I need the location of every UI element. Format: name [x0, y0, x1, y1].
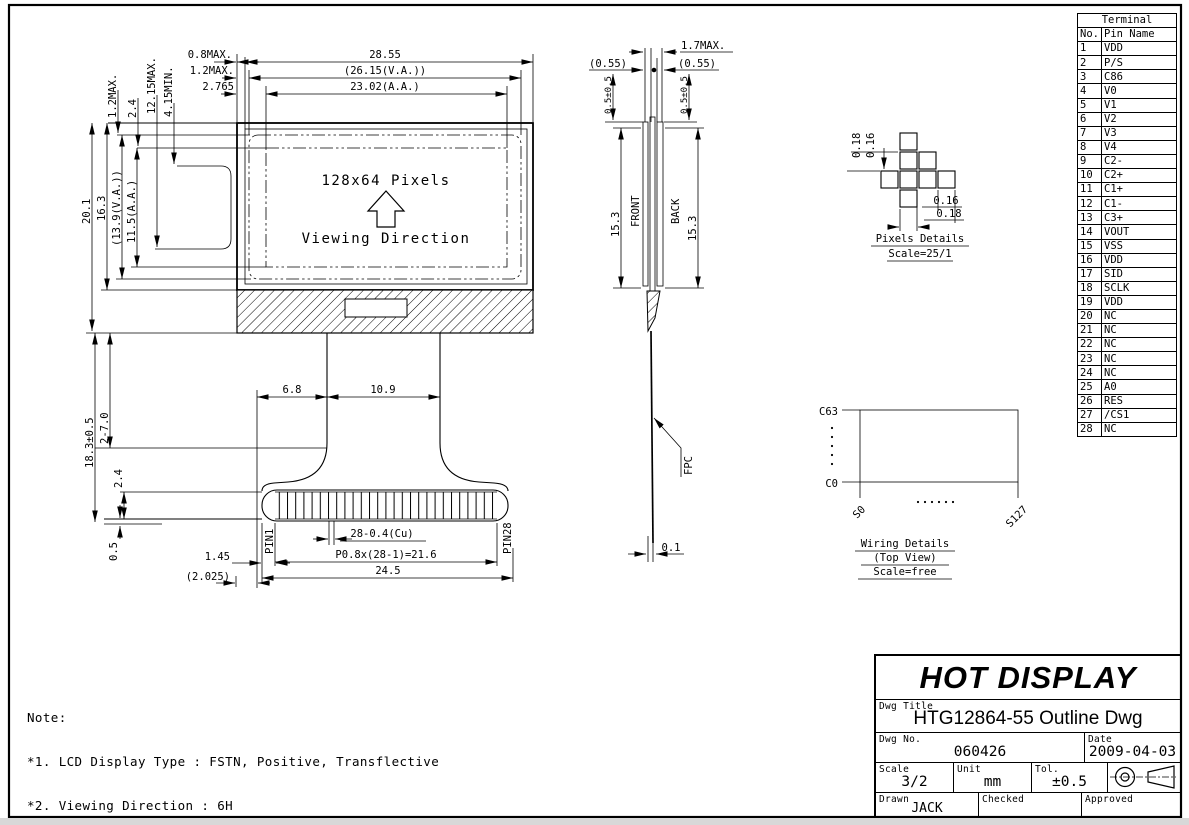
dim-153-left: 15.3 — [610, 212, 622, 237]
pixel-count-label: 128x64 Pixels — [321, 173, 450, 189]
table-row: 27/CS1 — [1078, 408, 1177, 422]
dim-top-24: 2.4 — [127, 99, 139, 118]
dim-offset-08: 0.8MAX. — [188, 49, 232, 61]
table-row: 4V0 — [1078, 84, 1177, 98]
dim-cu-height: 2.4 — [113, 469, 125, 488]
wiring-c0-label: C0 — [825, 478, 838, 490]
table-row: 23NC — [1078, 352, 1177, 366]
pixel-dim-018-h: 0.18 — [936, 208, 961, 220]
wiring-c63-label: C63 — [819, 406, 838, 418]
dim-width-va: (26.15(V.A.)) — [344, 65, 426, 77]
company-name: HOT DISPLAY — [876, 656, 1180, 699]
table-row: 13C3+ — [1078, 211, 1177, 225]
scale-value: 3/2 — [876, 774, 953, 790]
dim-145: 1.45 — [205, 551, 230, 563]
dim-offset-12: 1.2MAX. — [190, 65, 234, 77]
pixels-details-title: Pixels Details — [876, 233, 965, 245]
table-row: 17SID — [1078, 267, 1177, 281]
wiring-details-scale: Scale=free — [873, 566, 936, 578]
dim-width-total: 28.55 — [369, 49, 401, 61]
table-row: 24NC — [1078, 366, 1177, 380]
drawing-sheet: 128x64 Pixels Viewing Direction 1.2MAX. … — [0, 0, 1189, 825]
side-view: 1.7MAX. (0.55) (0.55) 0.5±0.5 0.5±0.5 15… — [589, 40, 733, 562]
viewing-direction-label: Viewing Direction — [302, 231, 471, 247]
table-row: 5V1 — [1078, 98, 1177, 112]
dim-height-total: 20.1 — [81, 199, 93, 224]
dim-neck-68: 6.8 — [283, 384, 302, 396]
pixel-dim-016-v: 0.16 — [865, 133, 877, 158]
table-row: 26RES — [1078, 394, 1177, 408]
dim-05-left: 0.5±0.5 — [604, 76, 614, 114]
dwg-title-value: HTG12864-55 Outline Dwg — [876, 708, 1180, 730]
dim-width-aa: 23.02(A.A.) — [350, 81, 420, 93]
table-row: 6V2 — [1078, 112, 1177, 126]
front-label: FRONT — [630, 195, 642, 227]
wiring-s0-label: S0 — [851, 504, 868, 521]
back-label: BACK — [670, 198, 682, 224]
drawn-value: JACK — [876, 801, 978, 816]
table-row: 9C2- — [1078, 154, 1177, 168]
dim-neck-109: 10.9 — [370, 384, 395, 396]
dim-offset-2765: 2.765 — [202, 81, 234, 93]
terminal-header-no: No. — [1078, 28, 1102, 42]
table-row: 12C1- — [1078, 197, 1177, 211]
pixels-details-scale: Scale=25/1 — [888, 248, 951, 260]
dim-153-right: 15.3 — [687, 216, 699, 241]
terminal-header-pin: Pin Name — [1102, 28, 1177, 42]
table-row: 25A0 — [1078, 380, 1177, 394]
checked-label: Checked — [982, 794, 1024, 805]
dim-height-va: (13.9(V.A.)) — [111, 170, 123, 246]
pixels-details: 0.18 0.16 0.16 0.18 Pixels Details Scale… — [847, 133, 969, 261]
table-row: 20NC — [1078, 309, 1177, 323]
pin28-label: PIN28 — [502, 522, 514, 554]
table-row: 7V3 — [1078, 126, 1177, 140]
dim-055-left: (0.55) — [589, 58, 627, 70]
table-row: 28NC — [1078, 422, 1177, 436]
dim-cu-count: 28-0.4(Cu) — [350, 528, 413, 540]
table-row: 11C1+ — [1078, 183, 1177, 197]
viewing-direction-arrow-icon — [368, 191, 404, 227]
dim-245: 24.5 — [375, 565, 400, 577]
wiring-details-subtitle: (Top View) — [873, 552, 936, 564]
title-block: HOT DISPLAY Dwg Title HTG12864-55 Outlin… — [874, 654, 1182, 818]
dim-17max: 1.7MAX. — [681, 40, 725, 52]
terminal-table: Terminal No. Pin Name 1VDD 2P/S 3C86 4V0… — [1077, 13, 1177, 437]
note-item: *1. LCD Display Type : FSTN, Positive, T… — [27, 755, 439, 770]
table-row: 21NC — [1078, 324, 1177, 338]
table-row: 8V4 — [1078, 140, 1177, 154]
pin-fingers — [275, 492, 497, 519]
fpc-bend — [647, 291, 660, 331]
dim-tail-length: 18.3±0.5 — [84, 417, 96, 468]
pin1-label: PIN1 — [264, 529, 276, 554]
approved-label: Approved — [1085, 794, 1133, 805]
table-row: 22NC — [1078, 338, 1177, 352]
table-row: 3C86 — [1078, 70, 1177, 84]
date-value: 2009-04-03 — [1085, 744, 1180, 760]
table-row: 14VOUT — [1078, 225, 1177, 239]
terminal-title: Terminal — [1078, 14, 1177, 28]
dwg-no-value: 060426 — [876, 744, 1084, 760]
dim-055-right: (0.55) — [678, 58, 716, 70]
dim-pitch: P0.8x(28-1)=21.6 — [335, 549, 436, 561]
wiring-details-title: Wiring Details — [861, 538, 950, 550]
wiring-details: C63 C0 S0 S127 Wiring Details (Top View)… — [819, 406, 1030, 579]
table-row: 15VSS — [1078, 239, 1177, 253]
dim-01: 0.1 — [662, 542, 681, 554]
unit-value: mm — [954, 774, 1031, 790]
third-angle-projection-icon — [1108, 763, 1178, 790]
table-row: 1VDD — [1078, 42, 1177, 56]
front-view: 128x64 Pixels Viewing Direction 1.2MAX. … — [81, 49, 533, 588]
pixel-dim-018-v: 0.18 — [851, 133, 863, 158]
fpc-label: FPC — [683, 456, 695, 475]
datum-dot — [652, 68, 657, 73]
pixel-dim-016-h: 0.16 — [933, 195, 958, 207]
notes-title: Note: — [27, 711, 439, 726]
wiring-s127-label: S127 — [1004, 504, 1030, 530]
table-row: 18SCLK — [1078, 281, 1177, 295]
table-row: 10C2+ — [1078, 169, 1177, 183]
table-row: 19VDD — [1078, 295, 1177, 309]
tol-value: ±0.5 — [1032, 774, 1107, 790]
dim-height-163: 16.3 — [96, 196, 108, 221]
dim-2025: (2.025) — [186, 571, 230, 583]
bond-window — [345, 299, 407, 317]
notes: Note: *1. LCD Display Type : FSTN, Posit… — [27, 682, 439, 825]
dim-05: 0.5 — [108, 542, 120, 561]
dim-tail-270: 2-7.0 — [99, 412, 111, 444]
table-row: 16VDD — [1078, 253, 1177, 267]
table-row: 2P/S — [1078, 56, 1177, 70]
dim-05-right: 0.5±0.5 — [680, 76, 690, 114]
dim-height-aa: 11.5(A.A.) — [126, 180, 138, 243]
dim-top-12max: 1.2MAX. — [107, 74, 119, 118]
dim-top-415min: 4.15MIN. — [163, 66, 175, 117]
note-item: *2. Viewing Direction : 6H — [27, 799, 439, 814]
dim-top-1215max: 12.15MAX. — [146, 57, 158, 114]
